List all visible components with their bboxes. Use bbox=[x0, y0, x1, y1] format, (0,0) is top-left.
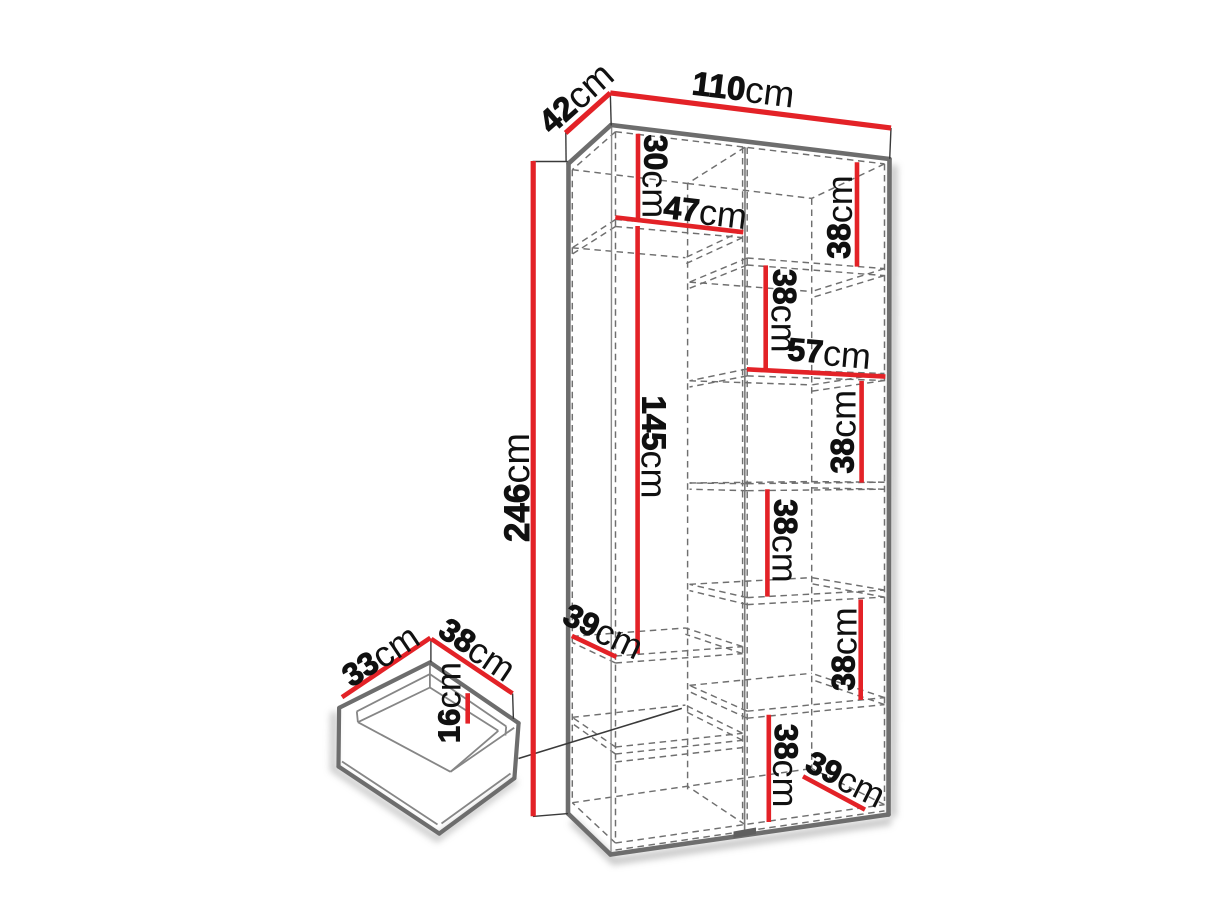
svg-text:145cm: 145cm bbox=[634, 395, 675, 498]
svg-text:246cm: 246cm bbox=[496, 433, 538, 542]
svg-text:16cm: 16cm bbox=[429, 662, 468, 743]
svg-text:38cm: 38cm bbox=[765, 499, 806, 583]
svg-text:38cm: 38cm bbox=[764, 269, 805, 353]
svg-text:38cm: 38cm bbox=[822, 390, 863, 474]
svg-text:38cm: 38cm bbox=[819, 175, 860, 259]
svg-text:38cm: 38cm bbox=[823, 607, 864, 691]
svg-text:38cm: 38cm bbox=[766, 724, 807, 808]
